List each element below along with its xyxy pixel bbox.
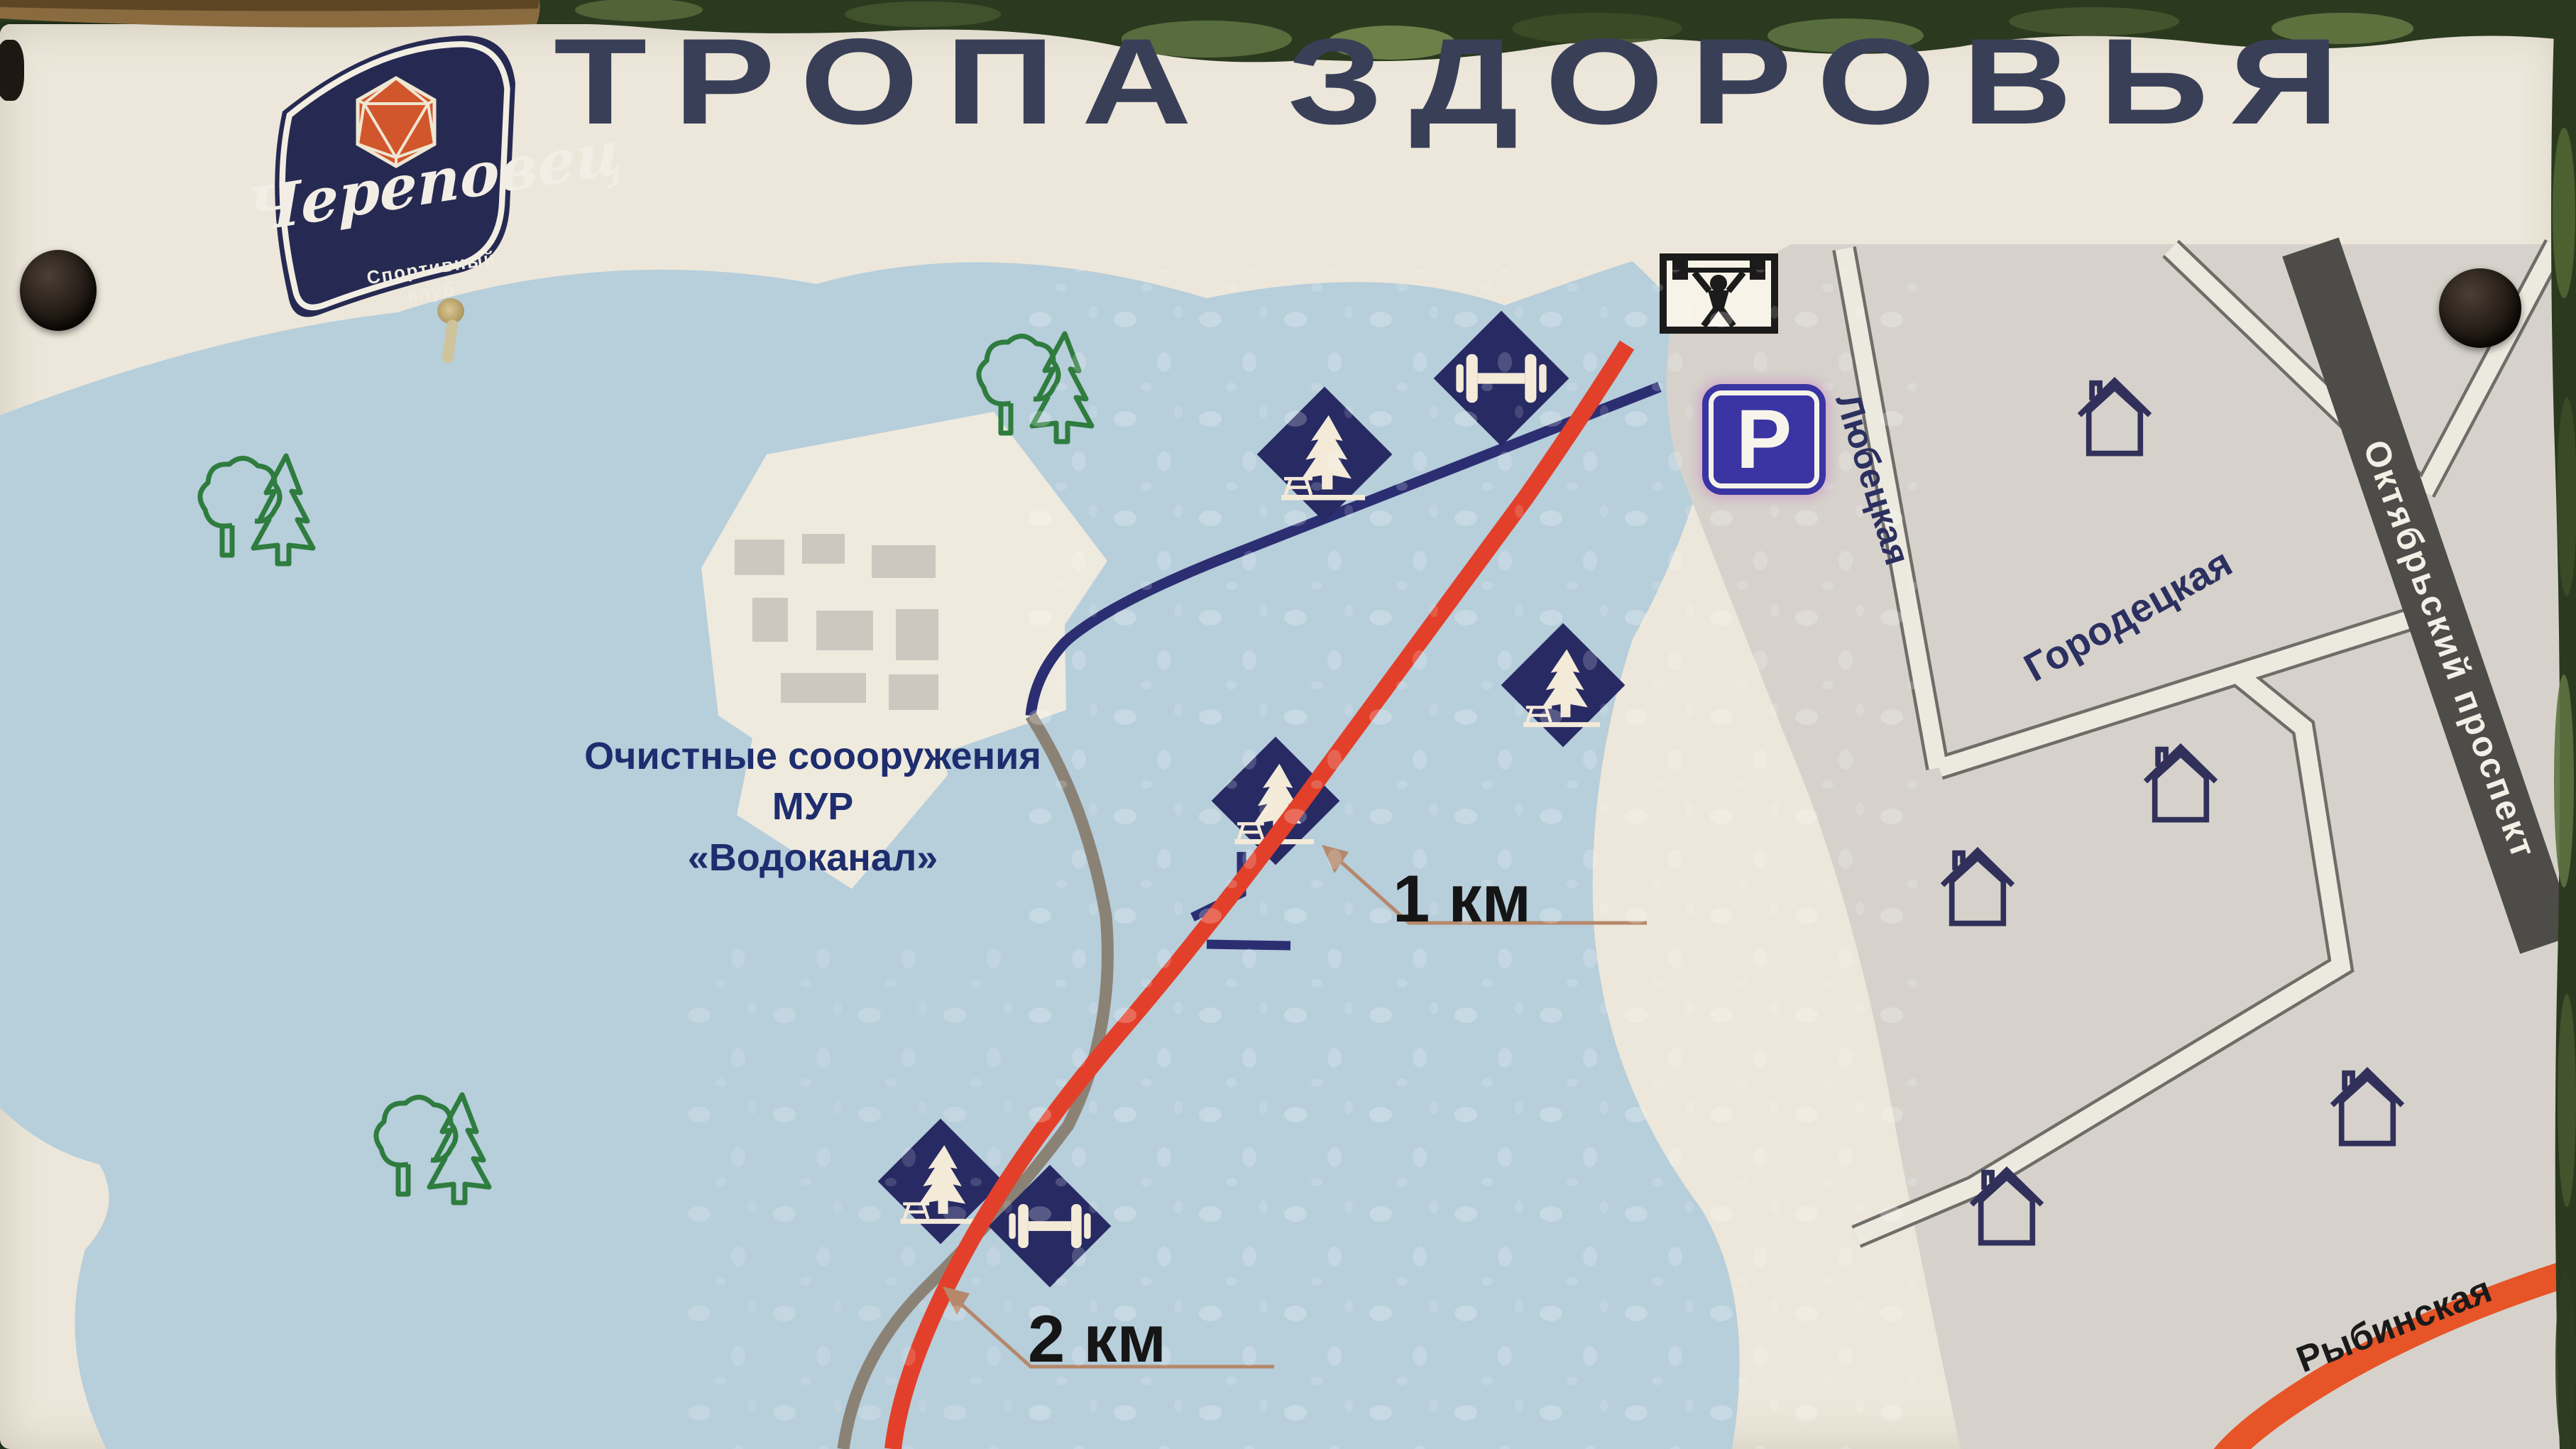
parking-letter: P	[1709, 390, 1819, 488]
distance-label-1km: 1 км	[1393, 860, 1531, 937]
distance-label-2km: 2 км	[1028, 1301, 1166, 1377]
bolt	[2439, 268, 2521, 348]
snail	[434, 298, 466, 366]
photo-of-trail-map-sign: ТРОПА ЗДОРОВЬЯ Череповец Спортивный клуб	[0, 0, 2576, 1449]
facility-line: МУР	[564, 782, 1061, 832]
sign-title: ТРОПА ЗДОРОВЬЯ	[554, 11, 2366, 152]
facility-line: «Водоканал»	[564, 833, 1061, 883]
parking-icon: P	[1702, 384, 1826, 495]
mounting-clamp	[0, 40, 24, 101]
bolt	[20, 250, 97, 331]
facility-line: Очистные соооружения	[564, 731, 1061, 782]
club-logo: Череповец Спортивный клуб	[226, 16, 531, 332]
facility-label: Очистные соооружения МУР «Водоканал»	[564, 731, 1061, 883]
